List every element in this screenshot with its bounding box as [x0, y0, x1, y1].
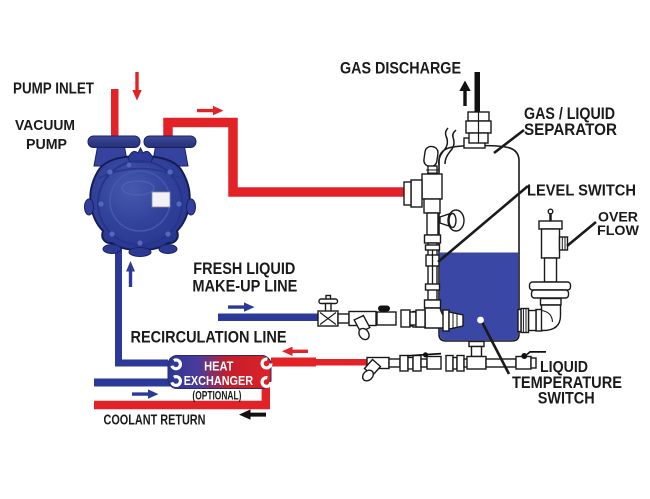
svg-text:(OPTIONAL): (OPTIONAL)	[192, 388, 241, 402]
svg-text:VACUUM: VACUUM	[15, 117, 75, 134]
svg-text:FLOW: FLOW	[597, 223, 639, 238]
svg-text:FRESH LIQUID: FRESH LIQUID	[193, 260, 295, 278]
svg-text:PUMP: PUMP	[26, 136, 67, 153]
svg-text:MAKE-UP LINE: MAKE-UP LINE	[192, 278, 297, 296]
svg-text:COOLANT RETURN: COOLANT RETURN	[104, 413, 206, 429]
svg-text:EXCHANGER: EXCHANGER	[184, 373, 254, 388]
svg-text:RECIRCULATION LINE: RECIRCULATION LINE	[131, 328, 287, 347]
svg-text:LEVEL SWITCH: LEVEL SWITCH	[527, 183, 636, 200]
svg-text:PUMP INLET: PUMP INLET	[13, 81, 94, 98]
svg-text:SWITCH: SWITCH	[538, 390, 595, 408]
svg-text:SEPARATOR: SEPARATOR	[524, 121, 617, 139]
svg-text:HEAT: HEAT	[204, 359, 233, 374]
svg-text:GAS DISCHARGE: GAS DISCHARGE	[340, 59, 461, 78]
